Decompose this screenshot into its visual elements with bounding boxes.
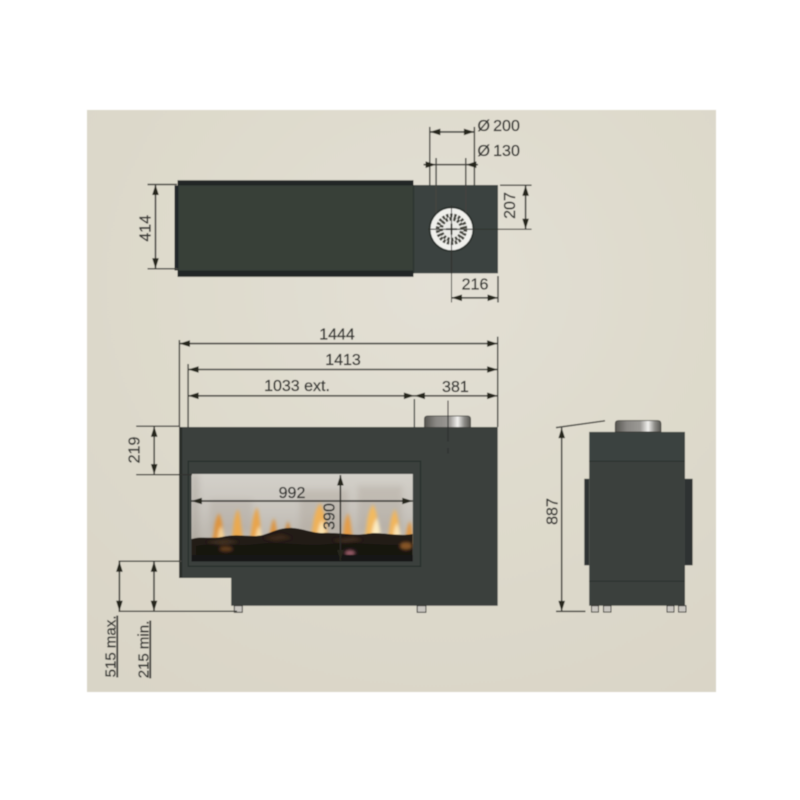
svg-text:216: 216 (462, 277, 489, 294)
svg-text:207: 207 (502, 192, 519, 219)
svg-text:1413: 1413 (325, 352, 361, 369)
svg-text:Ø 130: Ø 130 (478, 143, 520, 160)
svg-text:390: 390 (322, 503, 339, 530)
svg-text:219: 219 (127, 437, 144, 464)
svg-text:887: 887 (545, 498, 562, 525)
svg-text:515 max.: 515 max. (103, 616, 120, 678)
svg-text:381: 381 (442, 379, 469, 396)
svg-text:Ø 200: Ø 200 (478, 118, 520, 135)
svg-text:215 min.: 215 min. (136, 621, 153, 679)
svg-text:414: 414 (137, 215, 154, 242)
svg-text:1033 ext.: 1033 ext. (264, 378, 330, 395)
svg-text:992: 992 (279, 485, 306, 502)
svg-text:1444: 1444 (319, 327, 355, 344)
